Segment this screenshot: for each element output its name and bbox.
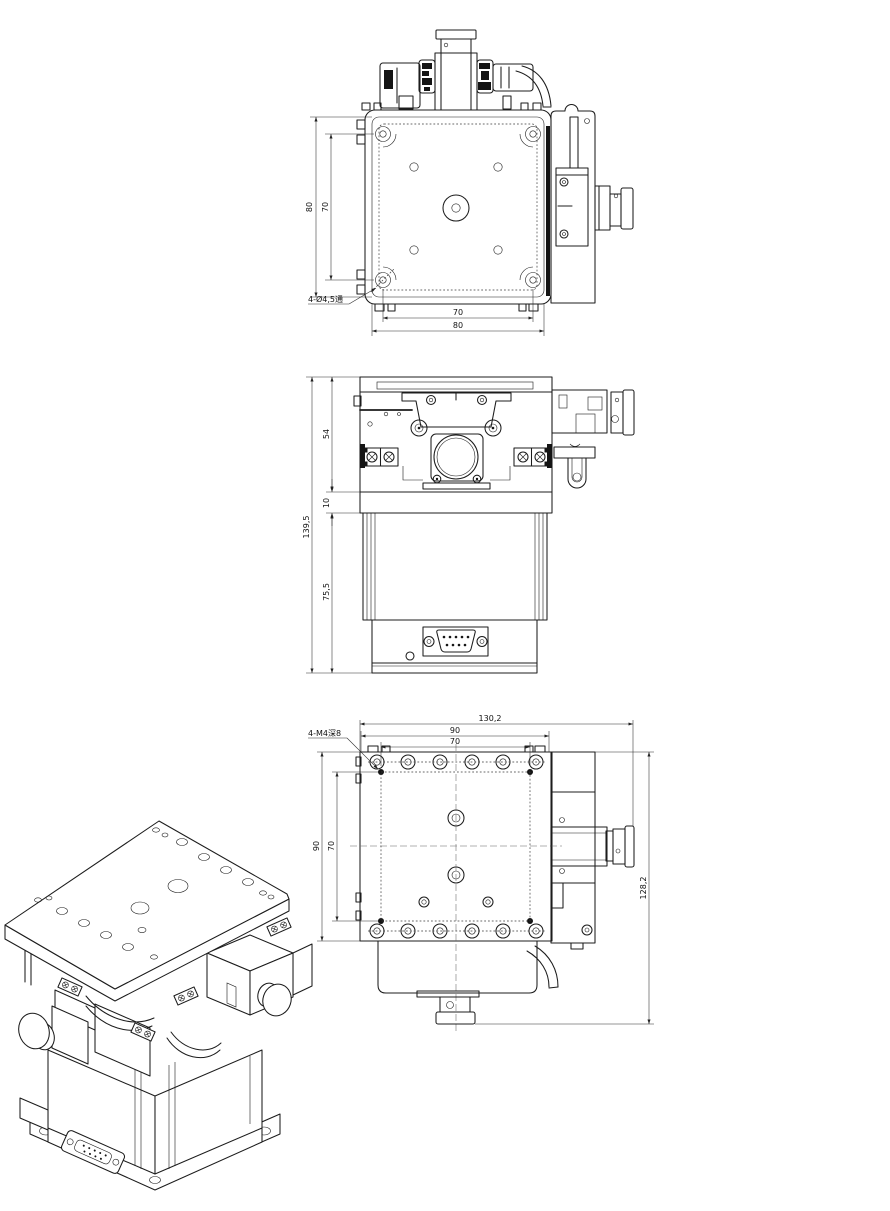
upper-stage-section: [354, 377, 552, 492]
dim-label-130-2: 130,2: [479, 714, 502, 723]
dim-label-80-horizontal: 80: [453, 321, 463, 330]
flexure-clamp-right: [514, 448, 549, 466]
corner-hole: [520, 267, 541, 288]
dim-label-70-top: 70: [450, 737, 460, 746]
dim-label-70-horizontal: 70: [453, 308, 463, 317]
bottom-view: 130,2 90 70 90 70 128,2 4-M4深8: [308, 714, 654, 1032]
iso-right-arm: [293, 944, 312, 995]
corner-hole: [376, 127, 397, 148]
corner-hole: [520, 127, 541, 148]
dim-label-75-5: 75,5: [322, 583, 331, 601]
dim-label-90-top: 90: [450, 726, 460, 735]
dim-label-70-vertical: 70: [321, 202, 330, 212]
front-view: 139,5 54 10 75,5: [302, 377, 634, 673]
top-view-dimensions: 80 70 70 80 4-Ø4,5通: [305, 117, 544, 336]
dim-label-54: 54: [322, 429, 331, 439]
top-view: 80 70 70 80 4-Ø4,5通: [305, 30, 633, 336]
db9-connector: [423, 627, 488, 656]
bottom-body: [350, 744, 562, 1032]
dim-label-80-vertical: 80: [305, 202, 314, 212]
isometric-view: [5, 821, 312, 1190]
cable-curve: [535, 946, 558, 987]
side-knob-assembly-front: [552, 390, 634, 488]
hole-callout-bottom-view: 4-M4深8: [308, 729, 341, 738]
stage-table-plate: [357, 103, 551, 311]
dim-label-70-left: 70: [327, 841, 336, 851]
spacer-plate: [360, 492, 552, 513]
flexure-clamp-left: [363, 448, 398, 466]
adjustment-knob-icon: [595, 186, 633, 230]
adjustment-knob-bottom-view: [606, 826, 634, 867]
dim-label-139-5: 139,5: [302, 516, 311, 539]
bottom-connector-stub: [417, 991, 479, 1024]
dim-label-90-left: 90: [312, 841, 321, 851]
base-housing: [363, 513, 547, 673]
hole-callout-top-view: 4-Ø4,5通: [308, 294, 343, 304]
dim-label-128-2: 128,2: [639, 877, 648, 900]
drawing-canvas: 80 70 70 80 4-Ø4,5通: [0, 0, 890, 1211]
side-bracket-bottom-view: [551, 752, 634, 949]
front-view-dimensions: 139,5 54 10 75,5: [302, 377, 372, 673]
engineering-drawing-sheet: 80 70 70 80 4-Ø4,5通: [0, 0, 890, 1211]
motor-assembly-top: [380, 30, 551, 110]
corner-hole: [371, 267, 396, 292]
dim-label-10: 10: [322, 498, 331, 508]
iso-left-knob: [14, 1009, 58, 1053]
side-bracket-top-view: [546, 105, 633, 304]
